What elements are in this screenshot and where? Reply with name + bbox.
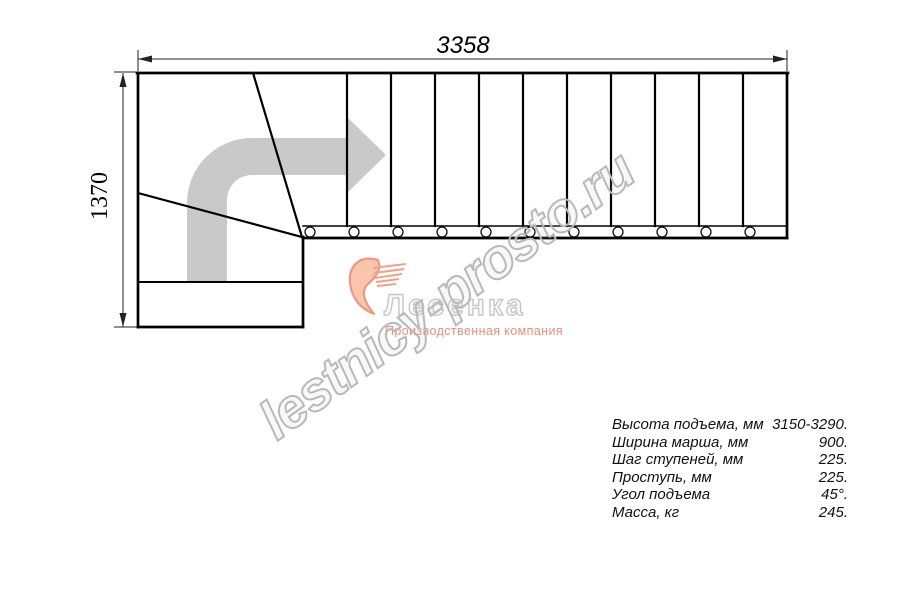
direction-arrow-icon — [187, 117, 386, 282]
spec-label: Шаг ступеней, мм — [612, 451, 743, 469]
spec-row: Проступь, мм 225. — [612, 469, 848, 487]
spec-row: Масса, кг 245. — [612, 504, 848, 522]
logo-wordmark: Лесенка — [384, 291, 526, 321]
stair-drawing-canvas: 3358 1370 Лесенка Производственная компа… — [0, 0, 900, 600]
dim-width-label: 3358 — [436, 32, 490, 59]
spec-row: Высота подъема, мм 3150-3290. — [612, 416, 848, 434]
spec-label: Проступь, мм — [612, 469, 712, 487]
dim-height-label: 1370 — [87, 172, 113, 220]
logo-tagline: Производственная компания — [385, 325, 563, 338]
spec-value: 900. — [819, 434, 848, 452]
spec-value: 45°. — [821, 486, 848, 504]
spec-value: 245. — [819, 504, 848, 522]
spec-label: Угол подъема — [612, 486, 710, 504]
spec-row: Угол подъема 45°. — [612, 486, 848, 504]
dimension-height: 1370 — [87, 72, 137, 327]
spec-table: Высота подъема, мм 3150-3290. Ширина мар… — [612, 416, 848, 522]
spec-value: 3150-3290. — [772, 416, 848, 434]
spec-row: Шаг ступеней, мм 225. — [612, 451, 848, 469]
baluster-circles — [305, 227, 755, 237]
spec-label: Высота подъема, мм — [612, 416, 764, 434]
spec-row: Ширина марша, мм 900. — [612, 434, 848, 452]
spec-label: Масса, кг — [612, 504, 679, 522]
spec-value: 225. — [819, 469, 848, 487]
spec-label: Ширина марша, мм — [612, 434, 748, 452]
spec-value: 225. — [819, 451, 848, 469]
tread-lines — [347, 73, 743, 226]
dimension-width: 3358 — [138, 32, 787, 71]
